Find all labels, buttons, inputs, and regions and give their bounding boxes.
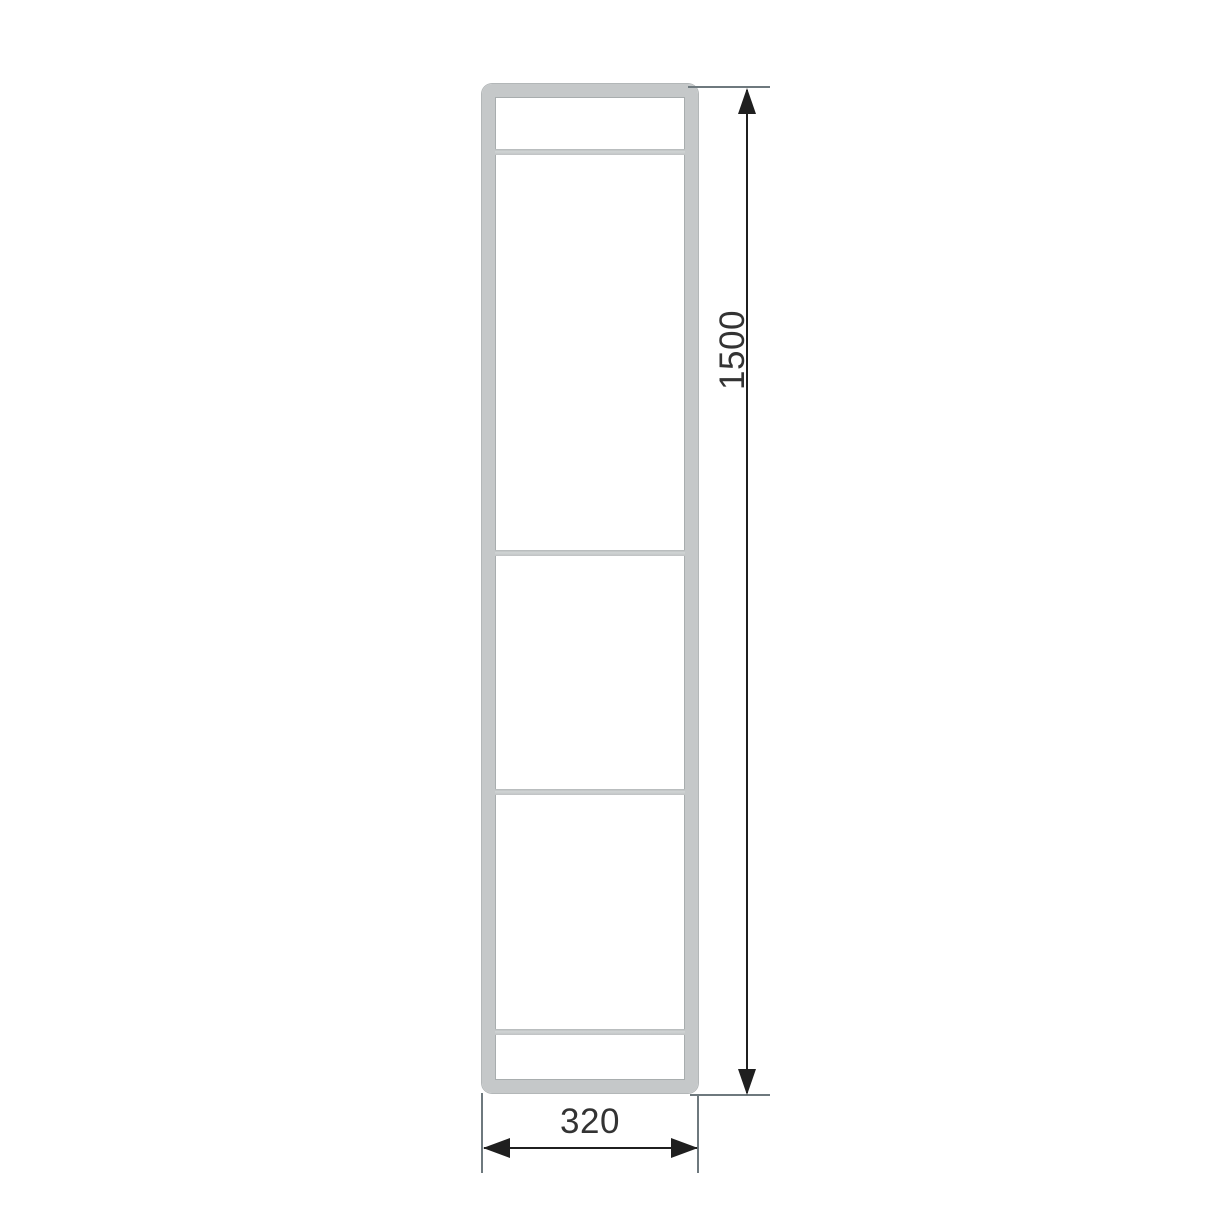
extension-line-right: [697, 1096, 699, 1173]
dimension-line-horizontal: [484, 1147, 697, 1149]
width-dimension: 320: [0, 0, 1208, 1208]
width-dimension-label: 320: [530, 1104, 650, 1140]
extension-line-left: [481, 1093, 483, 1173]
arrow-right-icon: [671, 1138, 698, 1158]
arrow-left-icon: [483, 1138, 510, 1158]
drawing-area: 1500 320: [0, 0, 1208, 1208]
